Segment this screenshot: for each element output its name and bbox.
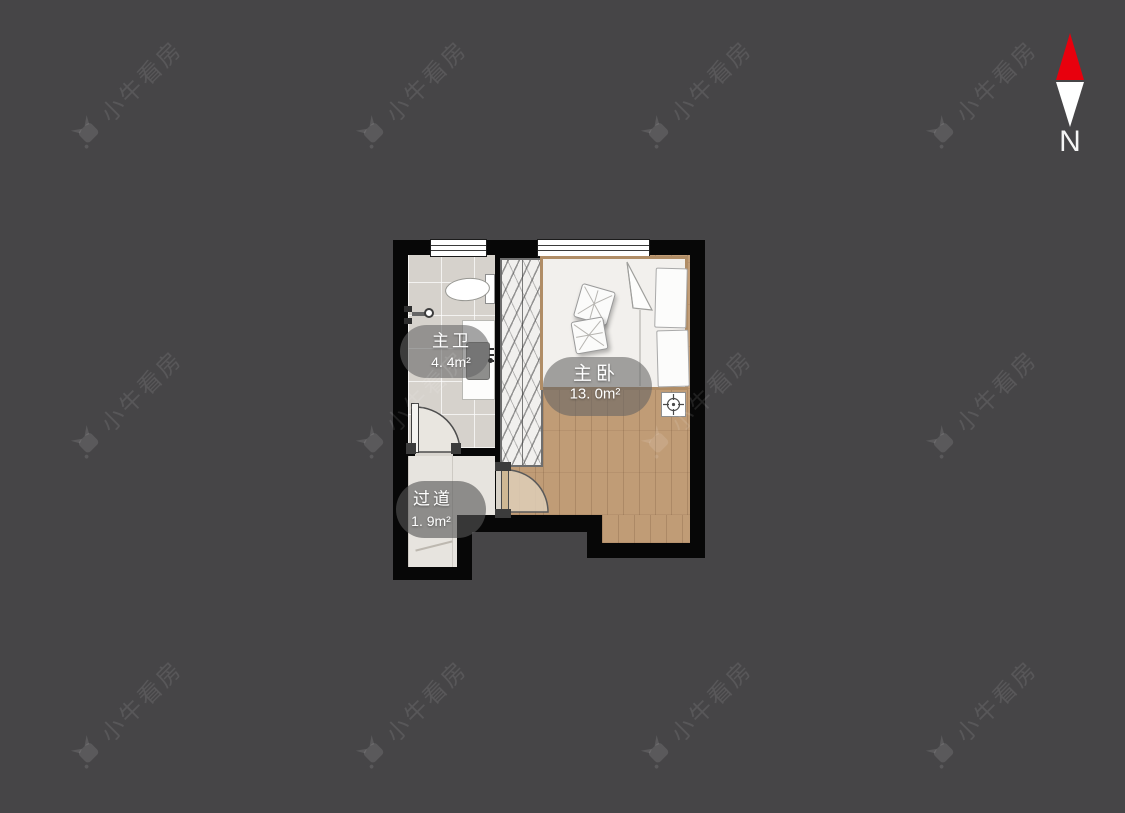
- wall-bottom-left: [472, 515, 602, 532]
- compass-label: N: [1059, 125, 1081, 159]
- watermark: 小牛看房: [636, 31, 759, 154]
- watermark: 小牛看房: [921, 31, 1044, 154]
- faucet-handle: [404, 306, 412, 312]
- door-jamb: [451, 443, 461, 454]
- bull-logo-icon: [923, 732, 963, 772]
- bull-logo-icon: [923, 422, 963, 462]
- watermark: 小牛看房: [921, 651, 1044, 774]
- door-jamb: [495, 462, 511, 471]
- bull-logo-icon: [638, 112, 678, 152]
- door-jamb: [406, 443, 416, 454]
- watermark-text: 小牛看房: [946, 341, 1044, 439]
- faucet-handle: [404, 318, 412, 324]
- crosshair-icon: [662, 393, 685, 416]
- window-bedroom: [537, 239, 650, 257]
- watermark-text: 小牛看房: [91, 651, 189, 749]
- compass: N: [1040, 25, 1110, 160]
- watermark-text: 小牛看房: [661, 651, 759, 749]
- cushion-creases: [572, 318, 608, 354]
- floorplan: 主卫 4. 4m² 主卧 13. 0m² 过道 1. 9m²: [393, 240, 705, 580]
- bull-logo-icon: [923, 112, 963, 152]
- bull-logo-icon: [638, 732, 678, 772]
- watermark-text: 小牛看房: [91, 31, 189, 129]
- window-bathroom: [430, 239, 487, 257]
- bull-logo-icon: [68, 422, 108, 462]
- faucet-knob: [424, 308, 434, 318]
- compass-north-needle: [1056, 33, 1084, 80]
- bull-logo-icon: [353, 422, 393, 462]
- bedroom-floor-south: [602, 515, 690, 543]
- bull-logo-icon: [68, 112, 108, 152]
- room-name-hallway: 过道: [413, 485, 453, 510]
- room-area-bedroom: 13. 0m²: [570, 386, 621, 403]
- watermark-text: 小牛看房: [376, 31, 474, 129]
- floor-drain-symbol: [661, 392, 686, 417]
- watermark: 小牛看房: [66, 341, 189, 464]
- room-area-hallway: 1. 9m²: [411, 513, 451, 529]
- room-name-bathroom: 主卫: [432, 327, 472, 352]
- bull-logo-icon: [68, 732, 108, 772]
- wardrobe: [500, 258, 543, 467]
- bull-logo-icon: [353, 112, 393, 152]
- watermark: 小牛看房: [351, 651, 474, 774]
- watermark: 小牛看房: [66, 31, 189, 154]
- watermark-text: 小牛看房: [91, 341, 189, 439]
- bedroom-door-swing: [505, 468, 551, 514]
- bedroom-door-leaf: [501, 469, 509, 512]
- watermark: 小牛看房: [636, 651, 759, 774]
- room-name-bedroom: 主卧: [573, 359, 619, 386]
- floorplan-screenshot: 小牛看房 小牛看房 小牛看房 小牛看房 小牛看房 小牛看房 小牛看房 小牛看房 …: [0, 0, 1125, 813]
- bull-logo-icon: [353, 732, 393, 772]
- compass-south-needle: [1056, 82, 1084, 127]
- pillow: [656, 330, 689, 388]
- throw-cushion: [570, 316, 608, 354]
- watermark-text: 小牛看房: [946, 651, 1044, 749]
- watermark-text: 小牛看房: [661, 31, 759, 129]
- watermark: 小牛看房: [351, 31, 474, 154]
- pillow: [654, 268, 688, 329]
- door-jamb: [495, 509, 511, 518]
- watermark: 小牛看房: [66, 651, 189, 774]
- watermark-text: 小牛看房: [376, 651, 474, 749]
- watermark: 小牛看房: [921, 341, 1044, 464]
- room-area-bathroom: 4. 4m²: [431, 354, 471, 370]
- watermark-text: 小牛看房: [946, 31, 1044, 129]
